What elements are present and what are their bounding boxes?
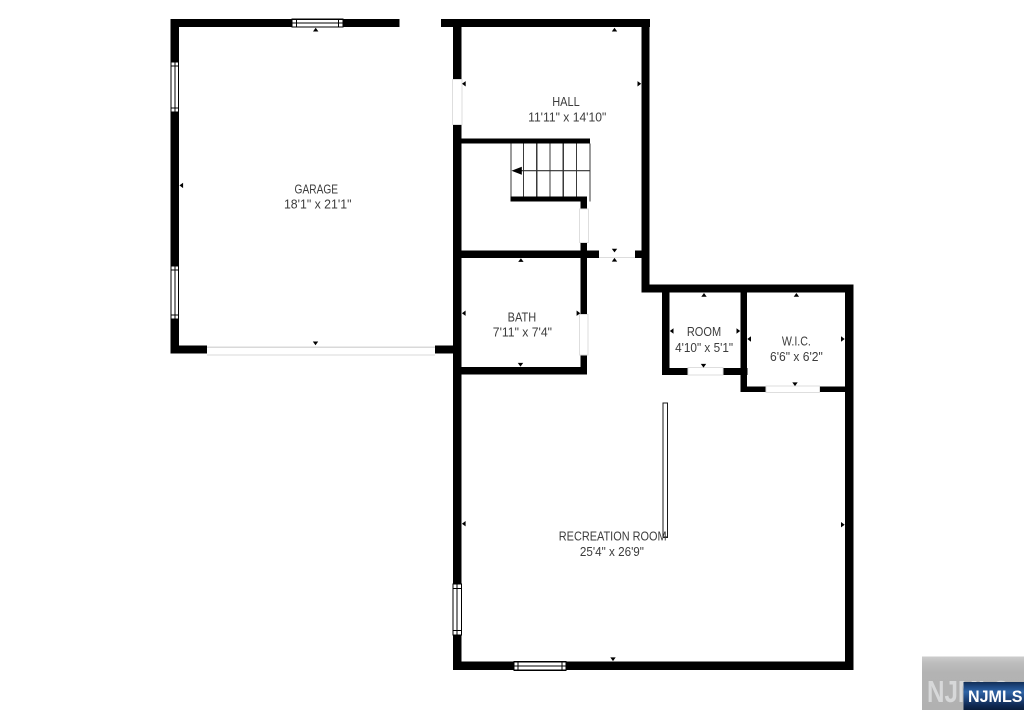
svg-text:6'6" x 6'2": 6'6" x 6'2" [770, 349, 823, 364]
svg-text:RECREATION ROOM: RECREATION ROOM [559, 528, 667, 543]
svg-text:W.I.C.: W.I.C. [782, 334, 811, 349]
svg-text:4'10" x 5'1": 4'10" x 5'1" [675, 340, 733, 355]
svg-text:BATH: BATH [508, 310, 537, 325]
svg-text:ROOM: ROOM [687, 324, 721, 339]
svg-text:11'11" x 14'10": 11'11" x 14'10" [528, 109, 607, 124]
svg-text:7'11" x 7'4": 7'11" x 7'4" [493, 324, 553, 339]
svg-text:NJMLS: NJMLS [968, 687, 1023, 706]
svg-text:GARAGE: GARAGE [295, 181, 339, 196]
svg-text:HALL: HALL [552, 94, 580, 109]
svg-text:18'1" x 21'1": 18'1" x 21'1" [284, 197, 352, 212]
svg-text:25'4" x 26'9": 25'4" x 26'9" [580, 544, 644, 559]
